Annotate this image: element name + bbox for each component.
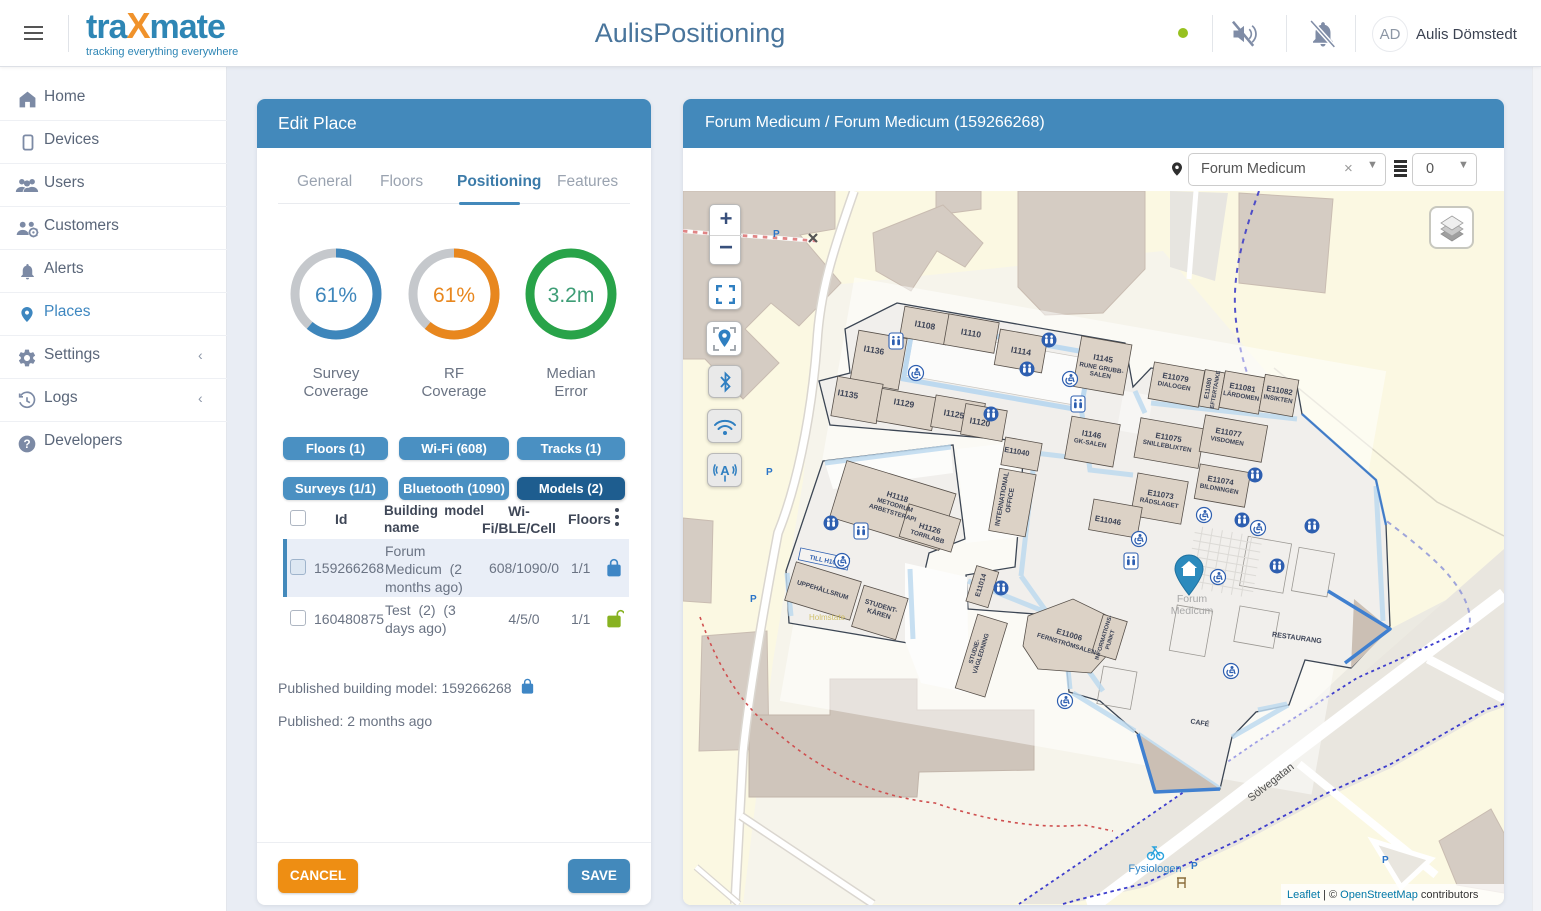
svg-text:Leaflet | © OpenStreetMap cont: Leaflet | © OpenStreetMap contributors <box>1287 889 1479 901</box>
svg-text:Medicum: Medicum <box>1171 605 1214 617</box>
svg-text:P: P <box>1191 861 1198 872</box>
svg-text:P: P <box>773 229 780 240</box>
svg-text:Forum: Forum <box>1177 593 1208 605</box>
svg-text:61%: 61% <box>315 284 357 307</box>
svg-text:Fysiologen: Fysiologen <box>1128 863 1181 875</box>
svg-text:Holmstate: Holmstate <box>809 613 846 622</box>
svg-text:P: P <box>766 467 773 478</box>
svg-text:61%: 61% <box>433 284 475 307</box>
svg-text:P: P <box>750 594 757 605</box>
svg-text:?: ? <box>23 438 30 451</box>
svg-text:P: P <box>1382 855 1389 866</box>
svg-text:3.2m: 3.2m <box>548 284 595 307</box>
